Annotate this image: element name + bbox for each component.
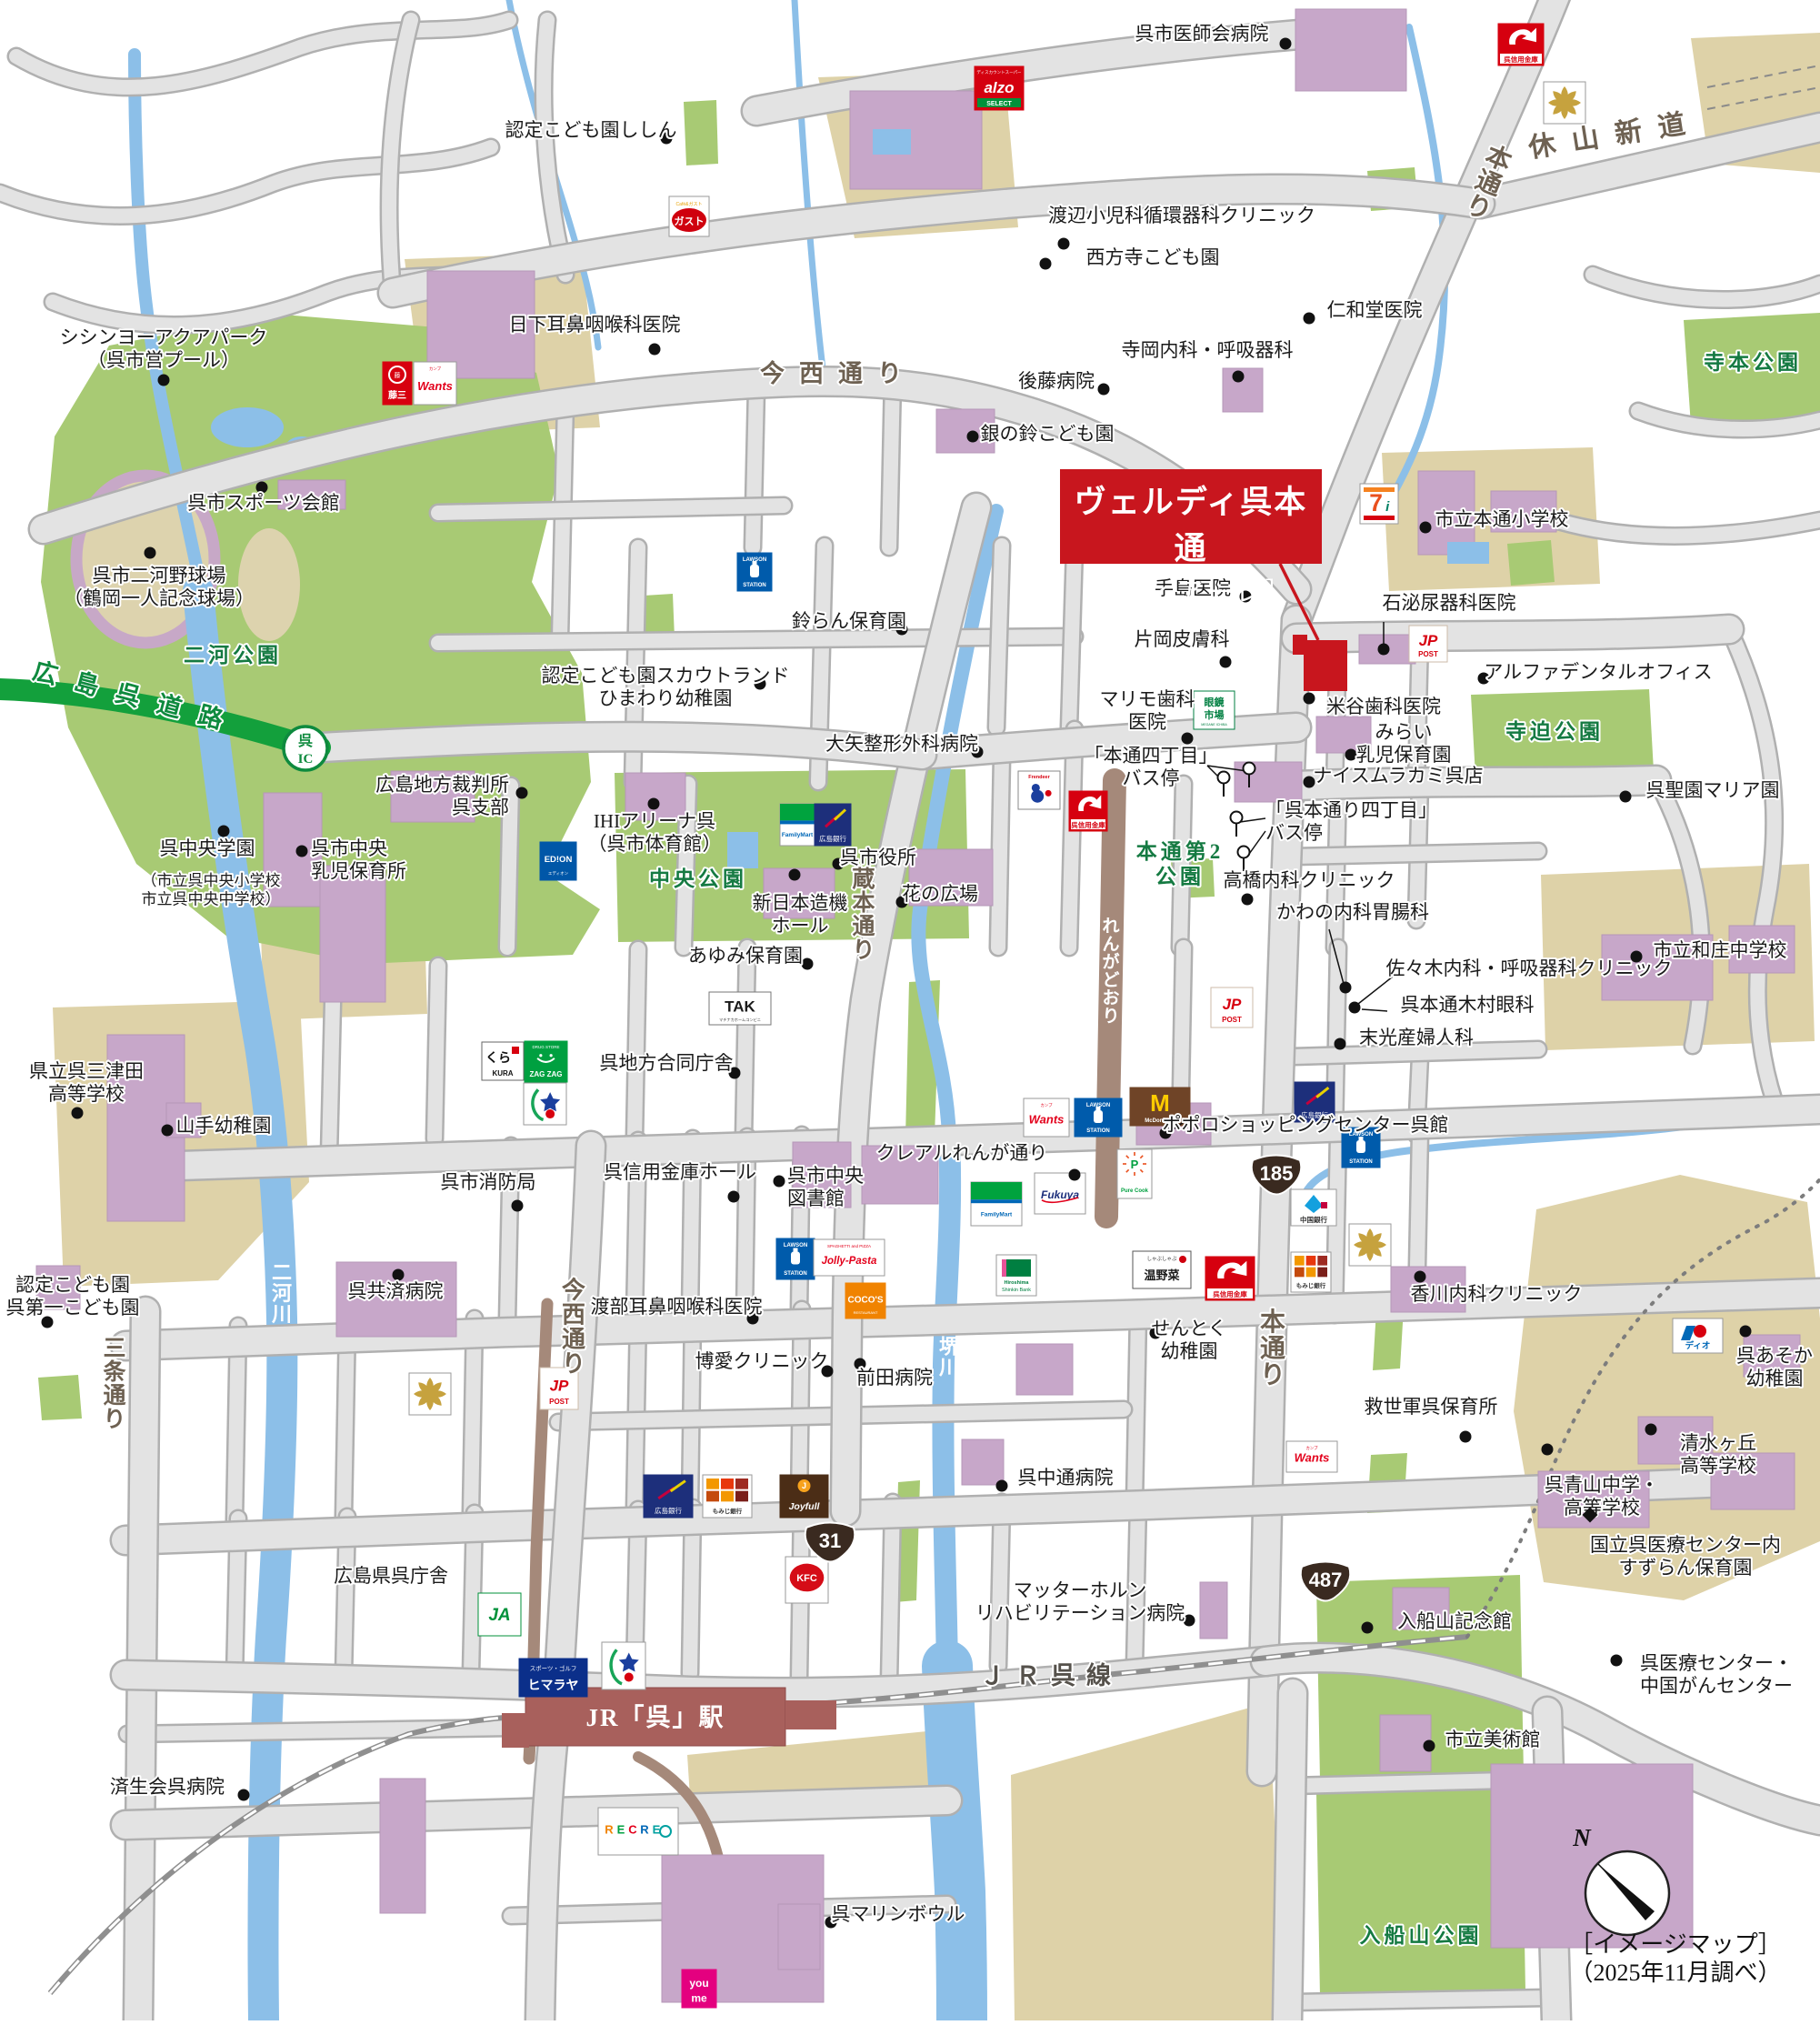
deer-mascot-logo-text: Frendeer xyxy=(1028,775,1050,780)
police-crest-icon xyxy=(1349,1224,1391,1266)
road-minor xyxy=(1293,1049,1538,1057)
place-label: 清水ヶ丘高等学校 xyxy=(1680,1432,1756,1477)
park-area xyxy=(684,100,718,165)
building xyxy=(1016,1344,1073,1395)
place-dot xyxy=(1098,384,1110,396)
place-label: 鈴らん保育園 xyxy=(792,610,906,632)
place-label: アルファデンタルオフィス xyxy=(1484,661,1712,683)
deer-mascot-logo xyxy=(1031,790,1044,803)
station-wing xyxy=(785,1700,836,1729)
momiji-bank-logo xyxy=(706,1491,719,1502)
bus-stop-icon xyxy=(1244,763,1255,775)
place-label: 日下耳鼻咽喉科医院 xyxy=(509,314,681,336)
place-dot xyxy=(1280,38,1292,50)
place-label: 呉あそか幼稚園 xyxy=(1736,1345,1813,1389)
zagzag-logo-text: ZAG ZAG xyxy=(530,1070,563,1078)
tak-logo-text: マチナカホームコンビニ xyxy=(719,1017,761,1023)
place-dot xyxy=(1349,1002,1361,1014)
place-label: シシンヨーアクアパーク（呉市営プール） xyxy=(60,326,268,371)
bus-stop-leader xyxy=(1240,818,1265,822)
momiji-bank-logo xyxy=(721,1491,734,1502)
park-area xyxy=(38,1375,82,1420)
star-swoosh-logo xyxy=(524,1083,566,1125)
place-dot xyxy=(393,1269,405,1281)
property-building xyxy=(1293,635,1307,655)
place-label: （市立呉中央小学校市立呉中央中学校） xyxy=(142,872,281,907)
place-dot xyxy=(967,431,979,443)
bus-stop-icon xyxy=(1238,847,1250,858)
place-label: 渡辺小児科循環器科クリニック xyxy=(1048,205,1315,226)
kfc-logo-text: KFC xyxy=(796,1573,817,1584)
familymart-logo xyxy=(780,820,815,824)
himaraya-logo-text: スポーツ・ゴルフ xyxy=(530,1664,577,1672)
road-minor xyxy=(438,637,1075,643)
fujisan-logo: 藤藤三 xyxy=(383,362,412,405)
dio-logo-text: ディオ xyxy=(1685,1340,1711,1351)
place-label: せんとく幼稚園 xyxy=(1151,1318,1226,1362)
familymart-logo-text: FamilyMart xyxy=(782,832,814,838)
leader-line xyxy=(1362,1009,1387,1011)
familymart-logo xyxy=(971,1199,1022,1203)
hiroshima-shinkin-logo: HiroshimaShinkin Bank xyxy=(996,1255,1036,1296)
place-dot xyxy=(1460,1431,1472,1443)
building xyxy=(962,1439,1004,1485)
momiji-bank-logo xyxy=(721,1479,734,1489)
property-title-box: ヴェルディ呉本通 ［ヴィアーレ］ xyxy=(1060,469,1322,564)
jolly-pasta-logo-text: SPAGHETTI and PIZZA xyxy=(827,1244,871,1248)
pool xyxy=(873,129,911,155)
joyfull-logo: JJoyfull xyxy=(780,1475,828,1518)
place-dot xyxy=(1611,1655,1623,1667)
road-minor xyxy=(16,20,509,87)
lawson-station-logo xyxy=(794,1248,798,1253)
deer-mascot-logo: Frendeer xyxy=(1018,771,1060,809)
park-ellipse xyxy=(238,528,300,641)
alzo-select-logo: ディスカウントスーパーalzoSELECT xyxy=(975,66,1024,110)
zagzag-logo: DRUG STOREZAG ZAG xyxy=(525,1041,567,1082)
seven-eleven-logo-text: 7 xyxy=(1369,489,1383,516)
place-dot xyxy=(1415,1271,1426,1283)
gusto-logo-text: ガスト xyxy=(675,215,705,227)
place-label: 寺岡内科・呼吸器科 xyxy=(1122,339,1294,361)
lawson-station-logo-text: STATION xyxy=(1349,1159,1372,1165)
building xyxy=(380,1779,425,1913)
road-minor xyxy=(435,966,438,1138)
wants-logo-text: Wants xyxy=(1029,1113,1065,1127)
place-label: 呉中央学園 xyxy=(160,837,255,859)
place-label: 呉市スポーツ会館 xyxy=(187,492,340,514)
place-label: 呉本通木村眼科 xyxy=(1401,994,1535,1016)
momiji-bank-logo: もみじ銀行 xyxy=(703,1475,752,1518)
onyasai-logo-text: 温野菜 xyxy=(1144,1268,1179,1282)
himaraya-logo: スポーツ・ゴルフヒマラヤ xyxy=(519,1659,587,1697)
place-label: 米谷歯科医院 xyxy=(1326,696,1441,717)
place-dot xyxy=(162,1125,174,1137)
place-dot xyxy=(145,547,156,559)
star-swoosh-logo-dot xyxy=(625,1672,634,1681)
mcdonalds-logo-text: M xyxy=(1150,1089,1170,1117)
road-label: 二河川 xyxy=(271,1261,292,1326)
momiji-bank-logo: もみじ銀行 xyxy=(1291,1252,1331,1292)
road-minor xyxy=(635,949,638,1138)
place-dot xyxy=(1335,1038,1346,1050)
pool xyxy=(727,832,758,868)
place-label: 呉聖園マリア園 xyxy=(1646,779,1780,801)
cocos-logo-text: COCO'S xyxy=(847,1295,883,1305)
hiroshima-shinkin-logo-text: Hiroshima xyxy=(1005,1280,1030,1286)
building xyxy=(1295,9,1406,91)
megane-ichiba-logo-text: MEGANE ICHIBA xyxy=(1201,723,1227,727)
place-label: 呉信用金庫ホール xyxy=(604,1161,756,1183)
kure-area-map: JR「呉」駅Café&ガストガストディスカウントスーパーalzoSELECT呉信… xyxy=(0,0,1820,2020)
kura-sushi-logo-text: KURA xyxy=(492,1069,513,1078)
road-label: 三条通り xyxy=(103,1337,126,1432)
place-label: 博愛クリニック xyxy=(695,1350,829,1372)
jp-post-logo-text: POST xyxy=(1418,650,1438,658)
road-label: 今西通り xyxy=(562,1276,585,1377)
lawson-station-logo: LAWSONSTATION xyxy=(776,1238,815,1279)
kure-shinkin-logo-text: 呉信用金庫 xyxy=(1071,820,1105,829)
road-label: 蔵本通り xyxy=(852,867,875,963)
crest-center xyxy=(1366,1241,1374,1248)
place-label: 呉市医師会病院 xyxy=(1135,23,1269,45)
recre-logo-text: R xyxy=(605,1823,614,1837)
momiji-bank-logo xyxy=(1317,1268,1327,1278)
station-name: JR「呉」駅 xyxy=(586,1703,725,1731)
wants-logo: カンブWants xyxy=(1024,1098,1069,1137)
place-dot xyxy=(1542,1444,1554,1456)
lawson-station-logo xyxy=(753,561,757,566)
kura-sushi-logo: くらKURA xyxy=(482,1042,524,1080)
road-label: れんがどおり xyxy=(1102,917,1119,1027)
kure-shinkin-logo: 呉信用金庫 xyxy=(1205,1257,1255,1300)
place-dot xyxy=(728,1191,740,1203)
familymart-logo xyxy=(971,1182,1022,1199)
place-label: かわの内科胃腸科 xyxy=(1276,901,1429,923)
lawson-station-logo-text: LAWSON xyxy=(784,1243,807,1248)
lawson-station-logo xyxy=(1096,1107,1101,1111)
park-area xyxy=(1507,540,1555,586)
building xyxy=(778,1904,820,1970)
kura-sushi-logo-text: くら xyxy=(485,1051,511,1066)
chugoku-bank-logo-text: 中国銀行 xyxy=(1300,1215,1327,1224)
property-building xyxy=(1304,640,1347,691)
road-minor xyxy=(1069,729,1075,947)
momiji-bank-logo xyxy=(1295,1256,1305,1266)
place-label: 呉共済病院 xyxy=(348,1280,444,1302)
place-label: 寺迫公園 xyxy=(1505,719,1604,743)
pool xyxy=(1447,542,1489,564)
cocos-logo: COCO'SRESTAURANT xyxy=(845,1283,885,1318)
place-dot xyxy=(1069,1169,1081,1181)
kure-ic-text: IC xyxy=(298,752,314,767)
momiji-bank-logo xyxy=(1317,1256,1327,1266)
police-crest-icon xyxy=(409,1373,451,1415)
place-label: 銀の鈴こども園 xyxy=(981,423,1115,445)
place-label: 末光産婦人科 xyxy=(1359,1027,1474,1048)
road-minor xyxy=(1293,1998,1547,2002)
road-minor xyxy=(1135,1315,1138,1502)
place-label: 石泌尿器科医院 xyxy=(1383,592,1516,614)
place-label: 市立和庄中学校 xyxy=(1654,939,1787,961)
kure-shinkin-logo-text: 呉信用金庫 xyxy=(1504,55,1538,64)
place-dot xyxy=(649,344,661,356)
place-label: 呉市消防局 xyxy=(441,1171,536,1193)
jp-post-logo-text: JP xyxy=(550,1377,569,1394)
road-minor xyxy=(996,546,1002,727)
road-label: 堺川 xyxy=(938,1336,960,1379)
momiji-bank-logo xyxy=(735,1479,748,1489)
route-shield-185: 185 xyxy=(1252,1156,1302,1195)
place-label: 香川内科クリニック xyxy=(1411,1283,1583,1305)
zagzag-logo xyxy=(550,1054,553,1057)
joyfull-logo-text: Joyfull xyxy=(789,1501,821,1512)
place-dot xyxy=(1040,258,1052,270)
place-label: 市立本通小学校 xyxy=(1435,508,1569,530)
wants-logo-text: カンブ xyxy=(1040,1102,1053,1108)
map-canvas: JR「呉」駅Café&ガストガストディスカウントスーパーalzoSELECT呉信… xyxy=(0,0,1820,2020)
place-label: 高橋内科クリニック xyxy=(1224,869,1395,891)
place-label: 救世軍呉保育所 xyxy=(1365,1396,1498,1418)
place-label: 入船山公園 xyxy=(1360,1923,1483,1947)
lawson-station-logo-text: STATION xyxy=(1086,1128,1109,1134)
route-shield-31: 31 xyxy=(805,1523,855,1562)
compass-north-label: N xyxy=(1572,1824,1592,1851)
place-dot xyxy=(72,1108,84,1119)
place-dot xyxy=(1233,371,1245,383)
road-major xyxy=(1287,1693,1293,2020)
place-dot xyxy=(1420,522,1432,534)
onyasai-logo-text: しゃぶしゃぶ xyxy=(1146,1256,1177,1262)
property-name: ヴェルディ呉本通 xyxy=(1060,476,1322,569)
place-dot xyxy=(1378,644,1390,656)
recre-logo-text: R xyxy=(640,1823,649,1837)
momiji-bank-logo-text: もみじ銀行 xyxy=(713,1507,743,1515)
himaraya-logo-text: ヒマラヤ xyxy=(528,1678,579,1692)
megane-ichiba-logo-text: 眼鏡 xyxy=(1205,696,1225,708)
jp-post-logo-text: JP xyxy=(1419,632,1438,649)
place-label: 済生会呉病院 xyxy=(110,1776,225,1798)
jp-post-logo-text: POST xyxy=(1222,1016,1242,1024)
place-label: 仁和堂医院 xyxy=(1327,299,1423,321)
road-minor xyxy=(127,1728,511,1734)
fujisan-logo-text: 藤 xyxy=(395,371,401,379)
kfc-logo: KFC xyxy=(785,1557,828,1603)
dio-logo: ディオ xyxy=(1673,1318,1723,1353)
crest-center xyxy=(1561,99,1568,106)
place-label: 呉中通病院 xyxy=(1018,1467,1114,1489)
place-dot xyxy=(296,846,308,857)
bus-stop-icon xyxy=(1231,812,1243,824)
lawson-station-logo xyxy=(750,565,759,577)
youme-logo-text: you xyxy=(689,1977,708,1990)
lawson-station-logo xyxy=(1359,1137,1364,1141)
place-dot xyxy=(789,869,801,881)
jp-post-logo-text: JP xyxy=(1223,996,1242,1013)
shield-number: 31 xyxy=(819,1529,841,1552)
place-dot xyxy=(1184,1615,1195,1627)
place-label: あゆみ保育園 xyxy=(688,945,803,967)
deer-mascot-logo xyxy=(1045,790,1052,797)
familymart-logo-text: FamilyMart xyxy=(981,1211,1013,1218)
zagzag-logo-text: DRUG STORE xyxy=(533,1045,560,1049)
police-crest-icon xyxy=(1544,82,1585,124)
place-dot xyxy=(158,375,170,386)
jp-post-logo-text: POST xyxy=(549,1398,569,1406)
star-swoosh-logo xyxy=(602,1642,645,1689)
fujisan-logo-text: 藤三 xyxy=(388,389,406,401)
road-label: 本通り xyxy=(1260,1308,1285,1389)
hiroshima-bank-logo-text: 広島銀行 xyxy=(819,834,846,843)
road-minor xyxy=(753,388,756,547)
place-label: クレアルれんが通り xyxy=(876,1142,1048,1164)
place-dot xyxy=(1220,657,1232,668)
place-dot xyxy=(1362,1622,1374,1634)
star-swoosh-logo-dot xyxy=(545,1109,555,1118)
building xyxy=(320,866,385,1002)
place-dot xyxy=(996,1480,1008,1492)
joyfull-logo-text: J xyxy=(802,1481,806,1490)
jp-post-logo: JPPOST xyxy=(1409,626,1447,662)
place-label: 入船山記念館 xyxy=(1397,1610,1512,1632)
wants-logo: カンブWants xyxy=(1286,1441,1337,1472)
alzo-select-logo-text: ディスカウントスーパー xyxy=(976,69,1022,75)
wants-logo-text: Wants xyxy=(417,379,453,393)
place-label: 中央公園 xyxy=(649,867,747,890)
station-wing xyxy=(502,1713,529,1748)
gusto-logo: Café&ガストガスト xyxy=(669,196,709,236)
road-minor xyxy=(998,1502,1002,1666)
place-label: 山手幼稚園 xyxy=(176,1115,272,1137)
kure-ic-kanji: 呉 xyxy=(298,733,313,749)
edion-logo-text: エディオン xyxy=(548,870,569,877)
place-dot xyxy=(1304,313,1315,325)
hiroshima-bank-logo: 広島銀行 xyxy=(815,804,851,846)
jolly-pasta-logo: SPAGHETTI and PIZZAJolly-Pasta xyxy=(814,1239,885,1276)
place-dot xyxy=(1424,1740,1435,1752)
megane-ichiba-logo: 眼鏡市場MEGANE ICHIBA xyxy=(1194,691,1235,729)
place-label: 市立美術館 xyxy=(1445,1729,1541,1750)
pure-cook-logo-text: P xyxy=(1131,1158,1139,1171)
place-dot xyxy=(1058,238,1070,250)
road-major xyxy=(756,29,1365,111)
jp-post-logo: JPPOST xyxy=(1211,987,1253,1028)
place-label: 寺本公園 xyxy=(1704,351,1802,374)
lawson-station-logo xyxy=(791,1252,800,1265)
dio-logo xyxy=(1694,1325,1706,1338)
place-label: 片岡皮膚科 xyxy=(1135,628,1230,650)
kure-shinkin-logo: 呉信用金庫 xyxy=(1069,791,1107,831)
wants-logo: カンブWants xyxy=(414,362,456,405)
place-dot xyxy=(774,1176,785,1188)
place-dot xyxy=(238,1789,250,1801)
zagzag-logo xyxy=(539,1054,542,1057)
place-dot xyxy=(218,826,230,837)
pedestrian-street xyxy=(533,1304,547,1693)
momiji-bank-logo xyxy=(1306,1268,1316,1278)
river xyxy=(947,1666,962,2020)
chugoku-bank-logo: 中国銀行 xyxy=(1291,1189,1336,1226)
road-minor xyxy=(560,402,565,638)
megane-ichiba-logo-text: 市場 xyxy=(1205,708,1225,721)
place-dot xyxy=(1740,1326,1752,1338)
hiroshima-bank-logo: 広島銀行 xyxy=(644,1475,693,1518)
ja-logo-text: JA xyxy=(488,1606,510,1625)
river xyxy=(943,1137,950,1666)
star-swoosh-logo-box xyxy=(602,1642,645,1689)
momiji-bank-logo xyxy=(735,1491,748,1502)
place-label: 渡部耳鼻咽喉科医院 xyxy=(591,1296,763,1318)
place-label: 呉マリンボウル xyxy=(832,1903,965,1925)
place-label: 認定こども園呉第一こども園 xyxy=(6,1274,140,1318)
property-subname: ［ヴィアーレ］ xyxy=(1060,571,1322,609)
ja-logo: JA xyxy=(478,1593,521,1636)
crest-center xyxy=(426,1390,434,1398)
hiroshima-shinkin-logo-text: Shinkin Bank xyxy=(1002,1288,1031,1293)
seven-eleven-logo: 7i xyxy=(1360,484,1398,524)
alzo-select-logo-text: SELECT xyxy=(986,101,1012,107)
road-major xyxy=(558,1146,591,1693)
road-minor xyxy=(889,379,893,547)
hiroshima-bank-logo-text: 広島銀行 xyxy=(655,1506,682,1515)
familymart-logo xyxy=(780,804,815,820)
place-label: ポポロショッピングセンター呉館 xyxy=(1163,1114,1449,1136)
kura-sushi-logo xyxy=(512,1047,519,1054)
place-dot xyxy=(648,798,660,810)
pure-cook-logo: PPure Cook xyxy=(1117,1149,1152,1198)
road-minor xyxy=(744,947,747,1138)
familymart-logo: FamilyMart xyxy=(780,804,815,846)
place-dot xyxy=(1620,791,1632,803)
edion-logo-text: ED!ON xyxy=(545,855,573,865)
leader-line xyxy=(1358,977,1393,1004)
place-label: 前田病院 xyxy=(856,1367,933,1388)
cocos-logo-text: RESTAURANT xyxy=(854,1310,878,1315)
building xyxy=(1200,1582,1227,1639)
ground-school xyxy=(1011,1702,1284,2020)
place-label: 後藤病院 xyxy=(1018,370,1095,392)
kure-shinkin-logo: 呉信用金庫 xyxy=(1498,24,1544,65)
youme-logo-text: me xyxy=(691,1991,707,2004)
wants-logo-text: カンブ xyxy=(429,366,442,372)
momiji-bank-logo xyxy=(1295,1268,1305,1278)
edion-logo: ED!ONエディオン xyxy=(540,842,576,880)
road-minor xyxy=(0,147,491,216)
youme-logo: youme xyxy=(682,1970,716,2008)
lawson-station-logo xyxy=(1356,1140,1365,1153)
kure-shinkin-logo-text: 呉信用金庫 xyxy=(1213,1289,1247,1298)
place-label: 花の広場 xyxy=(902,883,978,905)
place-dot xyxy=(802,958,814,970)
park-ellipse xyxy=(211,407,284,447)
place-dot xyxy=(516,787,528,799)
momiji-bank-logo-text: もみじ銀行 xyxy=(1296,1281,1326,1289)
lawson-station-logo: LAWSONSTATION xyxy=(737,553,772,591)
road-minor xyxy=(1293,851,1538,857)
momiji-bank-logo xyxy=(1306,1256,1316,1266)
lawson-station-logo-text: STATION xyxy=(784,1271,806,1277)
place-dot xyxy=(1182,733,1194,745)
jolly-pasta-logo-text: Jolly-Pasta xyxy=(822,1256,877,1267)
road-label: 今西通り xyxy=(760,359,916,387)
hiroshima-shinkin-logo xyxy=(1002,1259,1006,1277)
onyasai-logo: しゃぶしゃぶ温野菜 xyxy=(1133,1251,1191,1288)
map-credit: ［イメージマップ］ （2025年11月調べ） xyxy=(1535,1931,1816,1987)
place-label: 呉市役所 xyxy=(840,847,916,868)
place-label: 佐々木内科・呼吸器科クリニック xyxy=(1386,957,1673,979)
onyasai-logo xyxy=(1179,1256,1186,1263)
place-dot xyxy=(512,1200,524,1212)
